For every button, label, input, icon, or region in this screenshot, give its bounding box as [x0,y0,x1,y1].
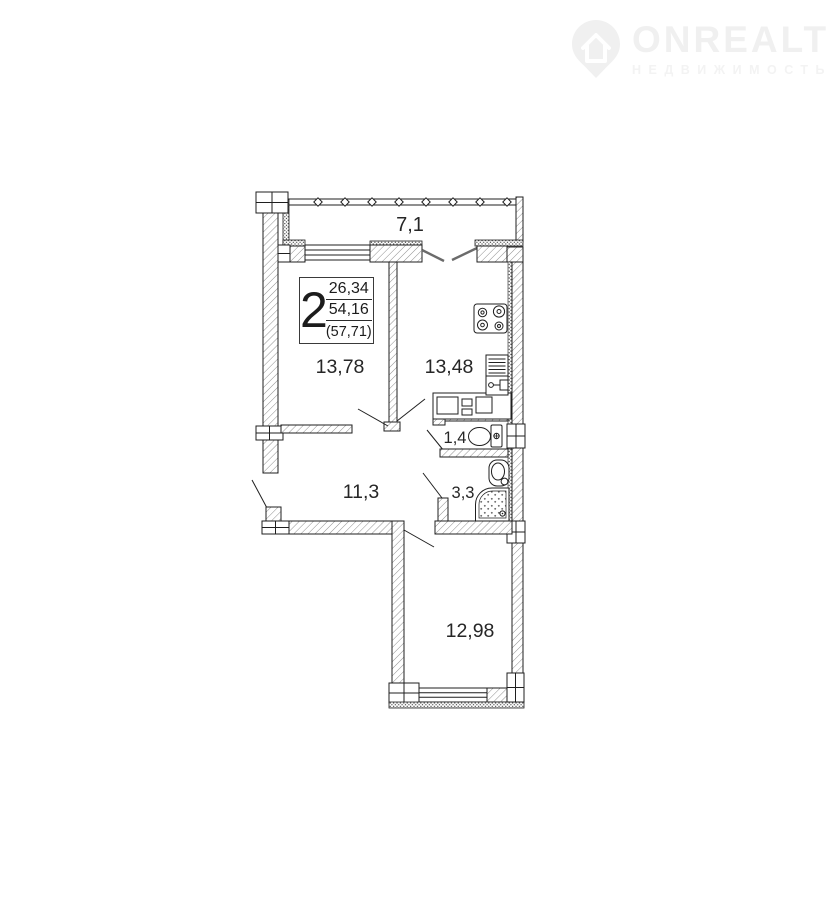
room-label-bedroom: 13,78 [316,356,365,378]
toilet-icon [469,425,503,447]
stove-icon [474,304,507,333]
floorplan-page: ONREALT НЕДВИЖИМОСТЬ 2 26,34 54,16 (57,7… [0,0,834,910]
room-label-wc: 1,4 [444,429,467,447]
room-label-bedroom2: 12,98 [446,620,495,642]
balcony-door [422,248,477,261]
bathroom-door [423,473,442,498]
room-label-hallway: 11,3 [343,481,380,503]
bedroom2-door [404,530,434,547]
room-label-balcony: 7,1 [396,214,424,236]
bedroom-door [358,409,388,426]
room-label-bathroom: 3,3 [452,484,475,502]
shower-icon [476,488,510,521]
kitchen-sink-icon [486,355,508,395]
bedroom-window [305,245,370,260]
bedroom2-walls [389,521,524,708]
kitchen-door [397,399,425,421]
kitchen-counter-icon [433,393,511,419]
wc-door [427,430,444,451]
floorplan-drawing: 7,1 13,78 13,48 1,4 3,3 11,3 12,98 [0,0,834,910]
bedroom2-window [419,688,487,702]
washbasin-icon [489,460,509,486]
hallway-bottom-wall [262,521,404,534]
entrance-door [252,480,267,508]
balcony-right-wall [516,197,523,242]
room-label-kitchen: 13,48 [425,356,474,378]
